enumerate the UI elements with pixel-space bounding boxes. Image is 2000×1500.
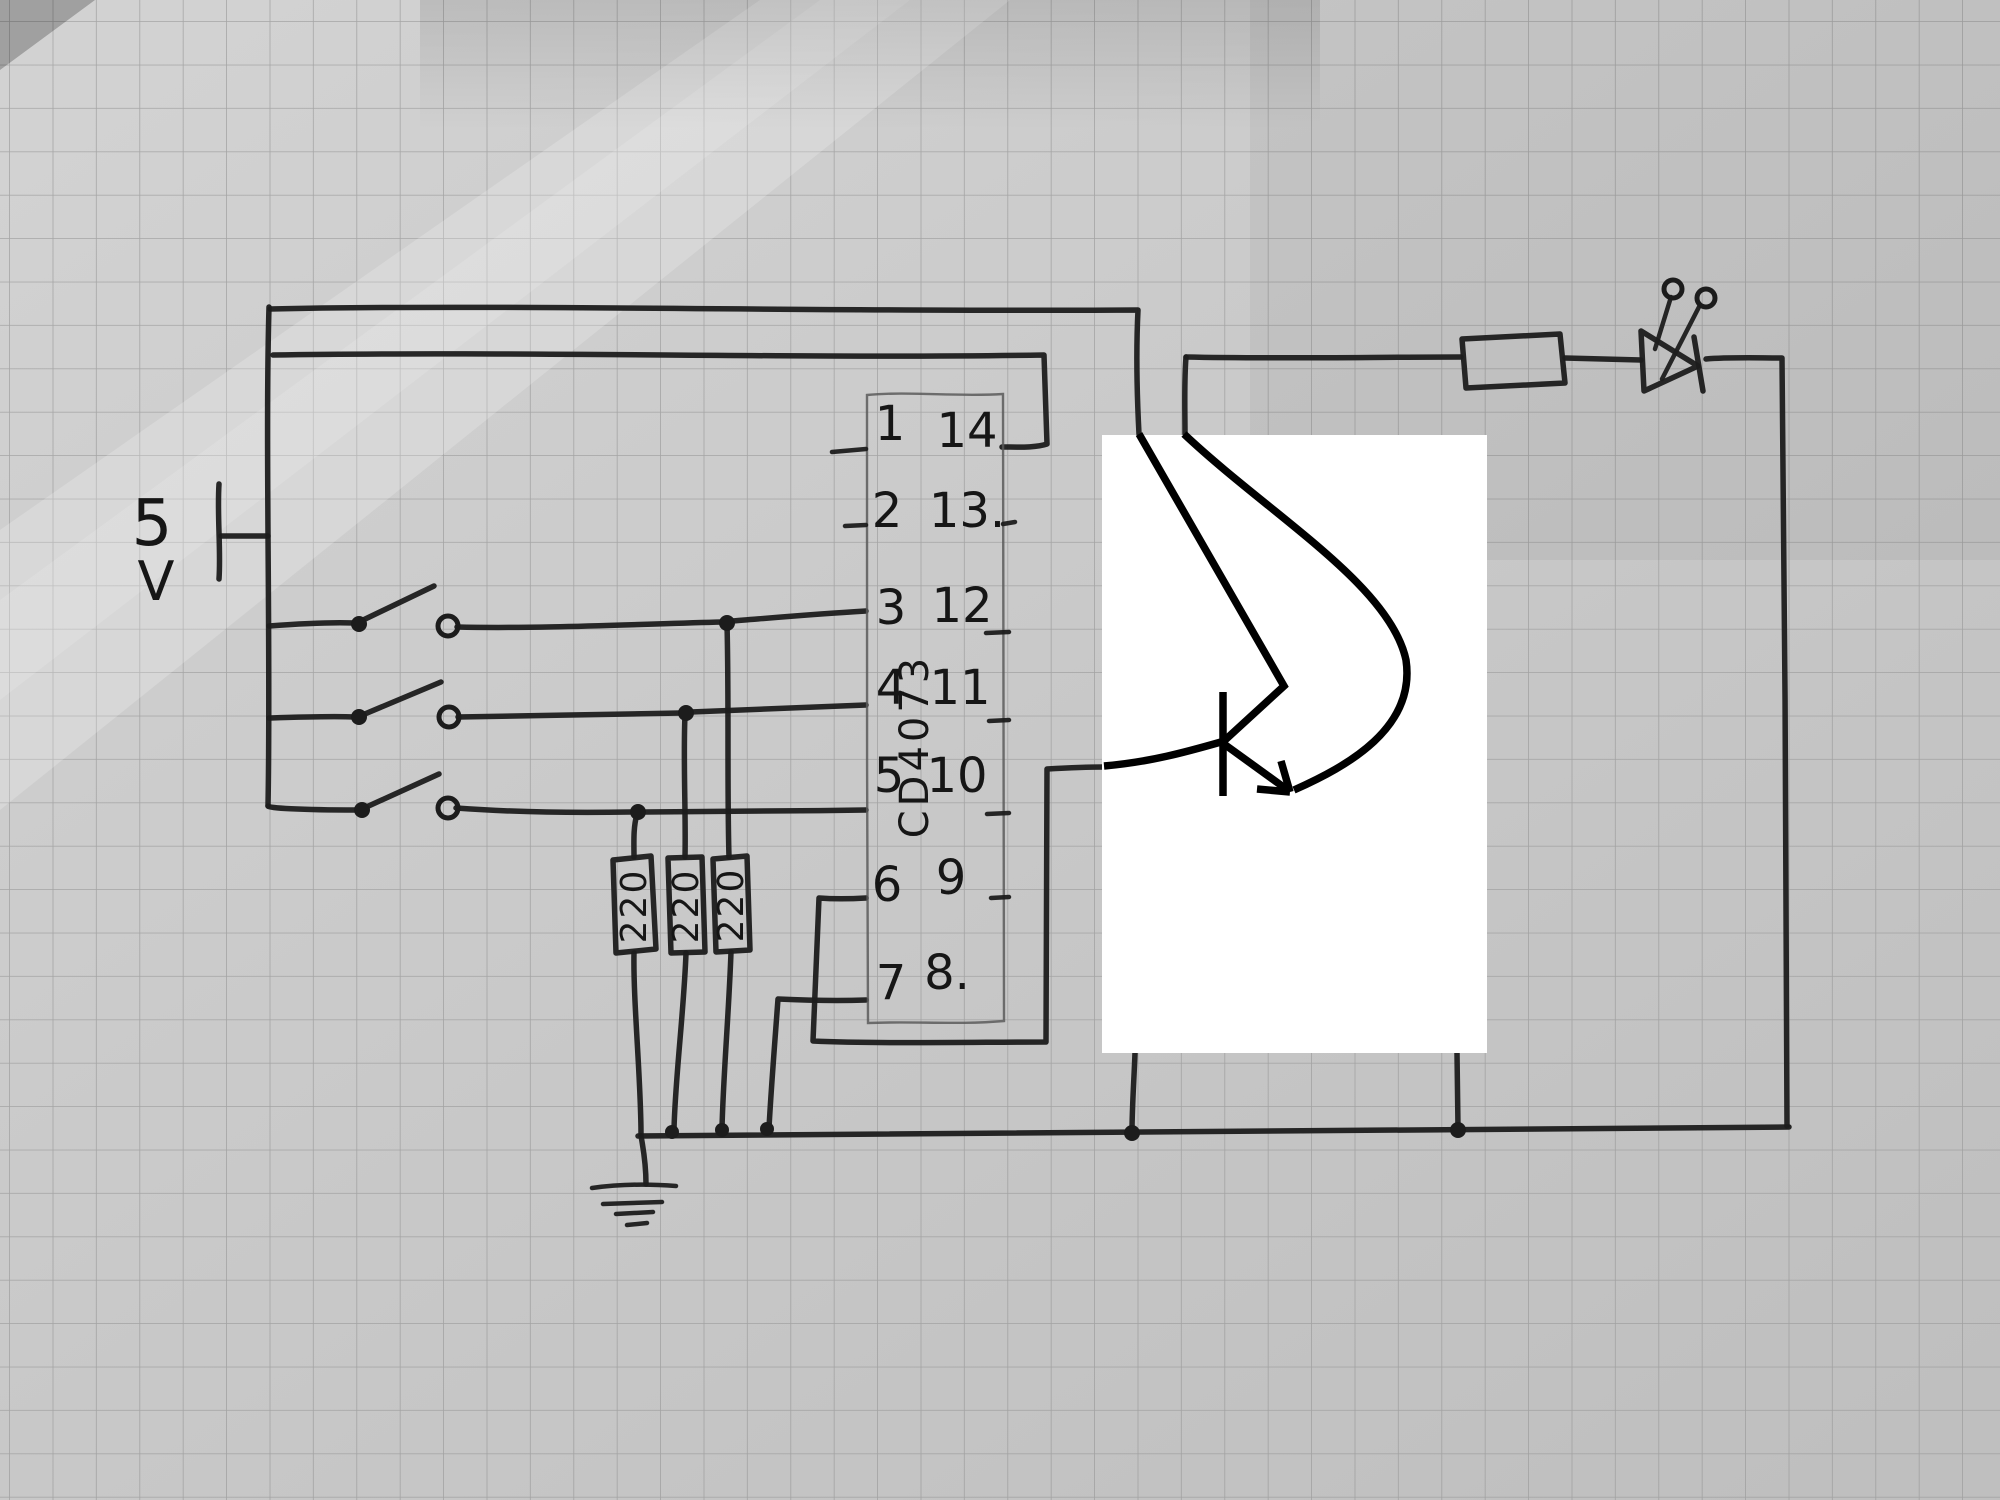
ic-pin-label-7: 7 — [876, 955, 907, 1011]
patch-stub-left — [1132, 1053, 1135, 1132]
left-supply-bus — [268, 307, 269, 806]
ic-pin-label-9: 9 — [936, 850, 967, 906]
ground-bar-4 — [627, 1223, 647, 1225]
resistor3-value: 220 — [711, 868, 752, 943]
junction-dot — [678, 705, 694, 721]
resistor2-value: 220 — [666, 869, 707, 944]
top-shadow-band — [420, 0, 1320, 130]
emitter-branch-stub-top — [1185, 357, 1186, 434]
switch1-drop-wire — [727, 624, 729, 857]
schematic-canvas: 1 2 3 4 5 6 7 14 13. 12 11 10 9 8. CD407… — [0, 0, 2000, 1500]
junction-dot — [719, 615, 735, 631]
switch2-pivot-dot — [351, 709, 367, 725]
junction-dot — [715, 1123, 729, 1137]
switch3-drop-wire — [634, 814, 637, 857]
ic-pin-label-2: 2 — [872, 483, 903, 539]
ic-pin-label-8: 8. — [924, 945, 970, 1001]
switch1-pivot-dot — [351, 616, 367, 632]
resistor1-value: 220 — [614, 869, 655, 944]
ic-name-label: CD4073 — [892, 654, 938, 839]
schematic-photo: 1 2 3 4 5 6 7 14 13. 12 11 10 9 8. CD407… — [0, 0, 2000, 1500]
ground-bar-2 — [603, 1202, 662, 1204]
ic-pin-label-13: 13. — [929, 483, 1005, 539]
junction-dot — [1124, 1125, 1140, 1141]
junction-dot — [760, 1122, 774, 1136]
switch2-drop-wire — [684, 715, 685, 857]
ic-pin-label-11: 11 — [929, 660, 990, 716]
ic-pin-label-14: 14 — [936, 403, 997, 459]
ground-bar-3 — [616, 1212, 653, 1214]
battery-plate — [218, 484, 219, 579]
resistor-to-led-wire — [1565, 358, 1641, 360]
ic-pin-label-1: 1 — [875, 396, 906, 452]
patch-stub-right — [1457, 1053, 1458, 1128]
junction-dot — [665, 1125, 679, 1139]
junction-dot — [1450, 1122, 1466, 1138]
ic-pin-label-6: 6 — [872, 857, 903, 913]
ic-pin-label-3: 3 — [876, 580, 907, 636]
emitter-branch-wire — [1186, 357, 1461, 358]
ic-pin-label-12: 12 — [931, 578, 992, 634]
transistor-annotation-overlay — [1102, 434, 1487, 1053]
switch3-pivot-dot — [354, 802, 370, 818]
switch2-feed-wire — [269, 717, 355, 718]
junction-dot — [630, 804, 646, 820]
supply-voltage-unit: V — [138, 550, 175, 613]
